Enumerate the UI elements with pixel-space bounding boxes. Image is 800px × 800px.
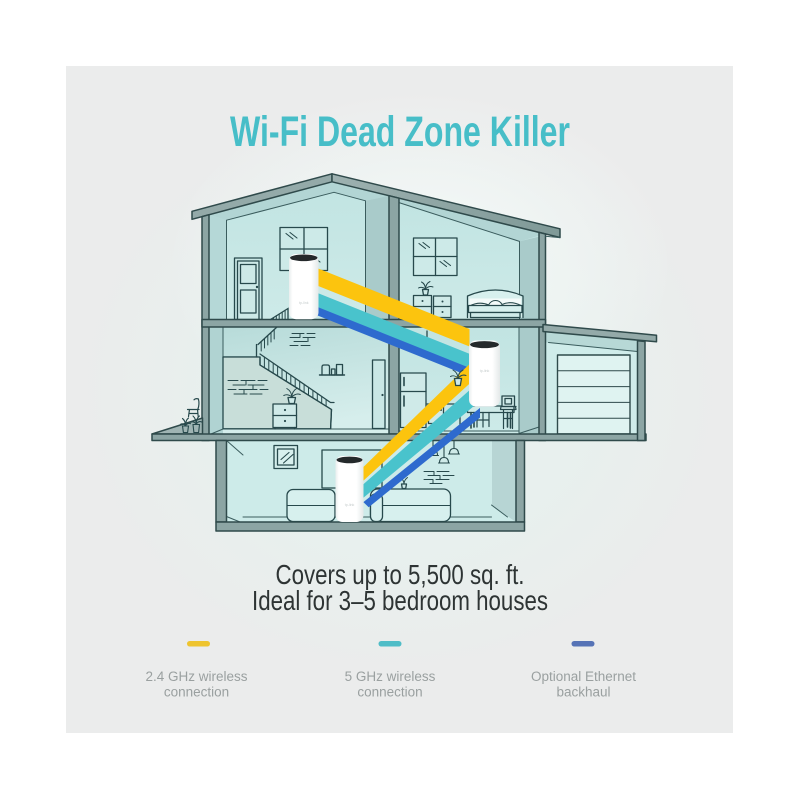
svg-text:tp-link: tp-link — [345, 503, 355, 507]
svg-text:tp-link: tp-link — [299, 301, 309, 305]
svg-text:tp-link: tp-link — [480, 369, 490, 373]
svg-text:2.4 GHz wireless: 2.4 GHz wireless — [145, 669, 247, 684]
svg-text:Ideal for 3–5 bedroom houses: Ideal for 3–5 bedroom houses — [252, 585, 548, 616]
svg-text:backhaul: backhaul — [556, 685, 610, 700]
svg-text:Wi-Fi Dead Zone Killer: Wi-Fi Dead Zone Killer — [230, 108, 570, 156]
svg-text:Optional Ethernet: Optional Ethernet — [531, 669, 636, 684]
svg-text:5 GHz wireless: 5 GHz wireless — [345, 669, 436, 684]
svg-text:connection: connection — [357, 685, 422, 700]
svg-text:connection: connection — [164, 685, 229, 700]
